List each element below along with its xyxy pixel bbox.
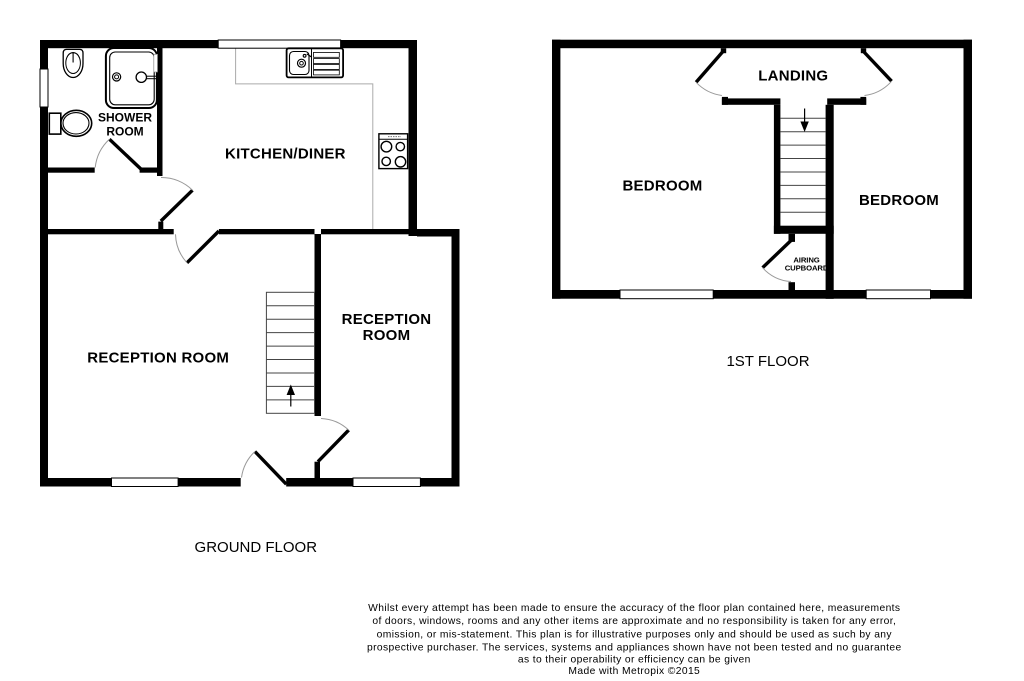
svg-text:BEDROOM: BEDROOM [859,192,939,209]
svg-text:RECEPTION ROOM: RECEPTION ROOM [87,350,229,367]
svg-text:1ST FLOOR: 1ST FLOOR [726,353,809,370]
svg-text:Whilst every attempt has been: Whilst every attempt has been made to en… [368,603,900,614]
svg-text:SHOWER: SHOWER [98,111,152,125]
svg-text:prospective purchaser. The ser: prospective purchaser. The services, sys… [367,642,902,653]
svg-text:RECEPTION: RECEPTION [342,311,432,328]
svg-text:ROOM: ROOM [363,327,411,344]
svg-text:ROOM: ROOM [106,124,143,138]
svg-text:LANDING: LANDING [758,67,828,84]
svg-text:KITCHEN/DINER: KITCHEN/DINER [225,145,346,162]
svg-text:as to their operability or eff: as to their operability or efficiency ca… [518,654,751,665]
svg-text:omission, or mis-statement. Th: omission, or mis-statement. This plan is… [377,629,893,640]
svg-text:BEDROOM: BEDROOM [622,178,702,195]
svg-text:Made with Metropix ©2015: Made with Metropix ©2015 [568,666,700,677]
svg-text:of doors, windows, rooms and a: of doors, windows, rooms and any other i… [372,616,896,627]
svg-text:GROUND FLOOR: GROUND FLOOR [195,539,318,556]
svg-text:CUPBOARD: CUPBOARD [785,263,829,272]
